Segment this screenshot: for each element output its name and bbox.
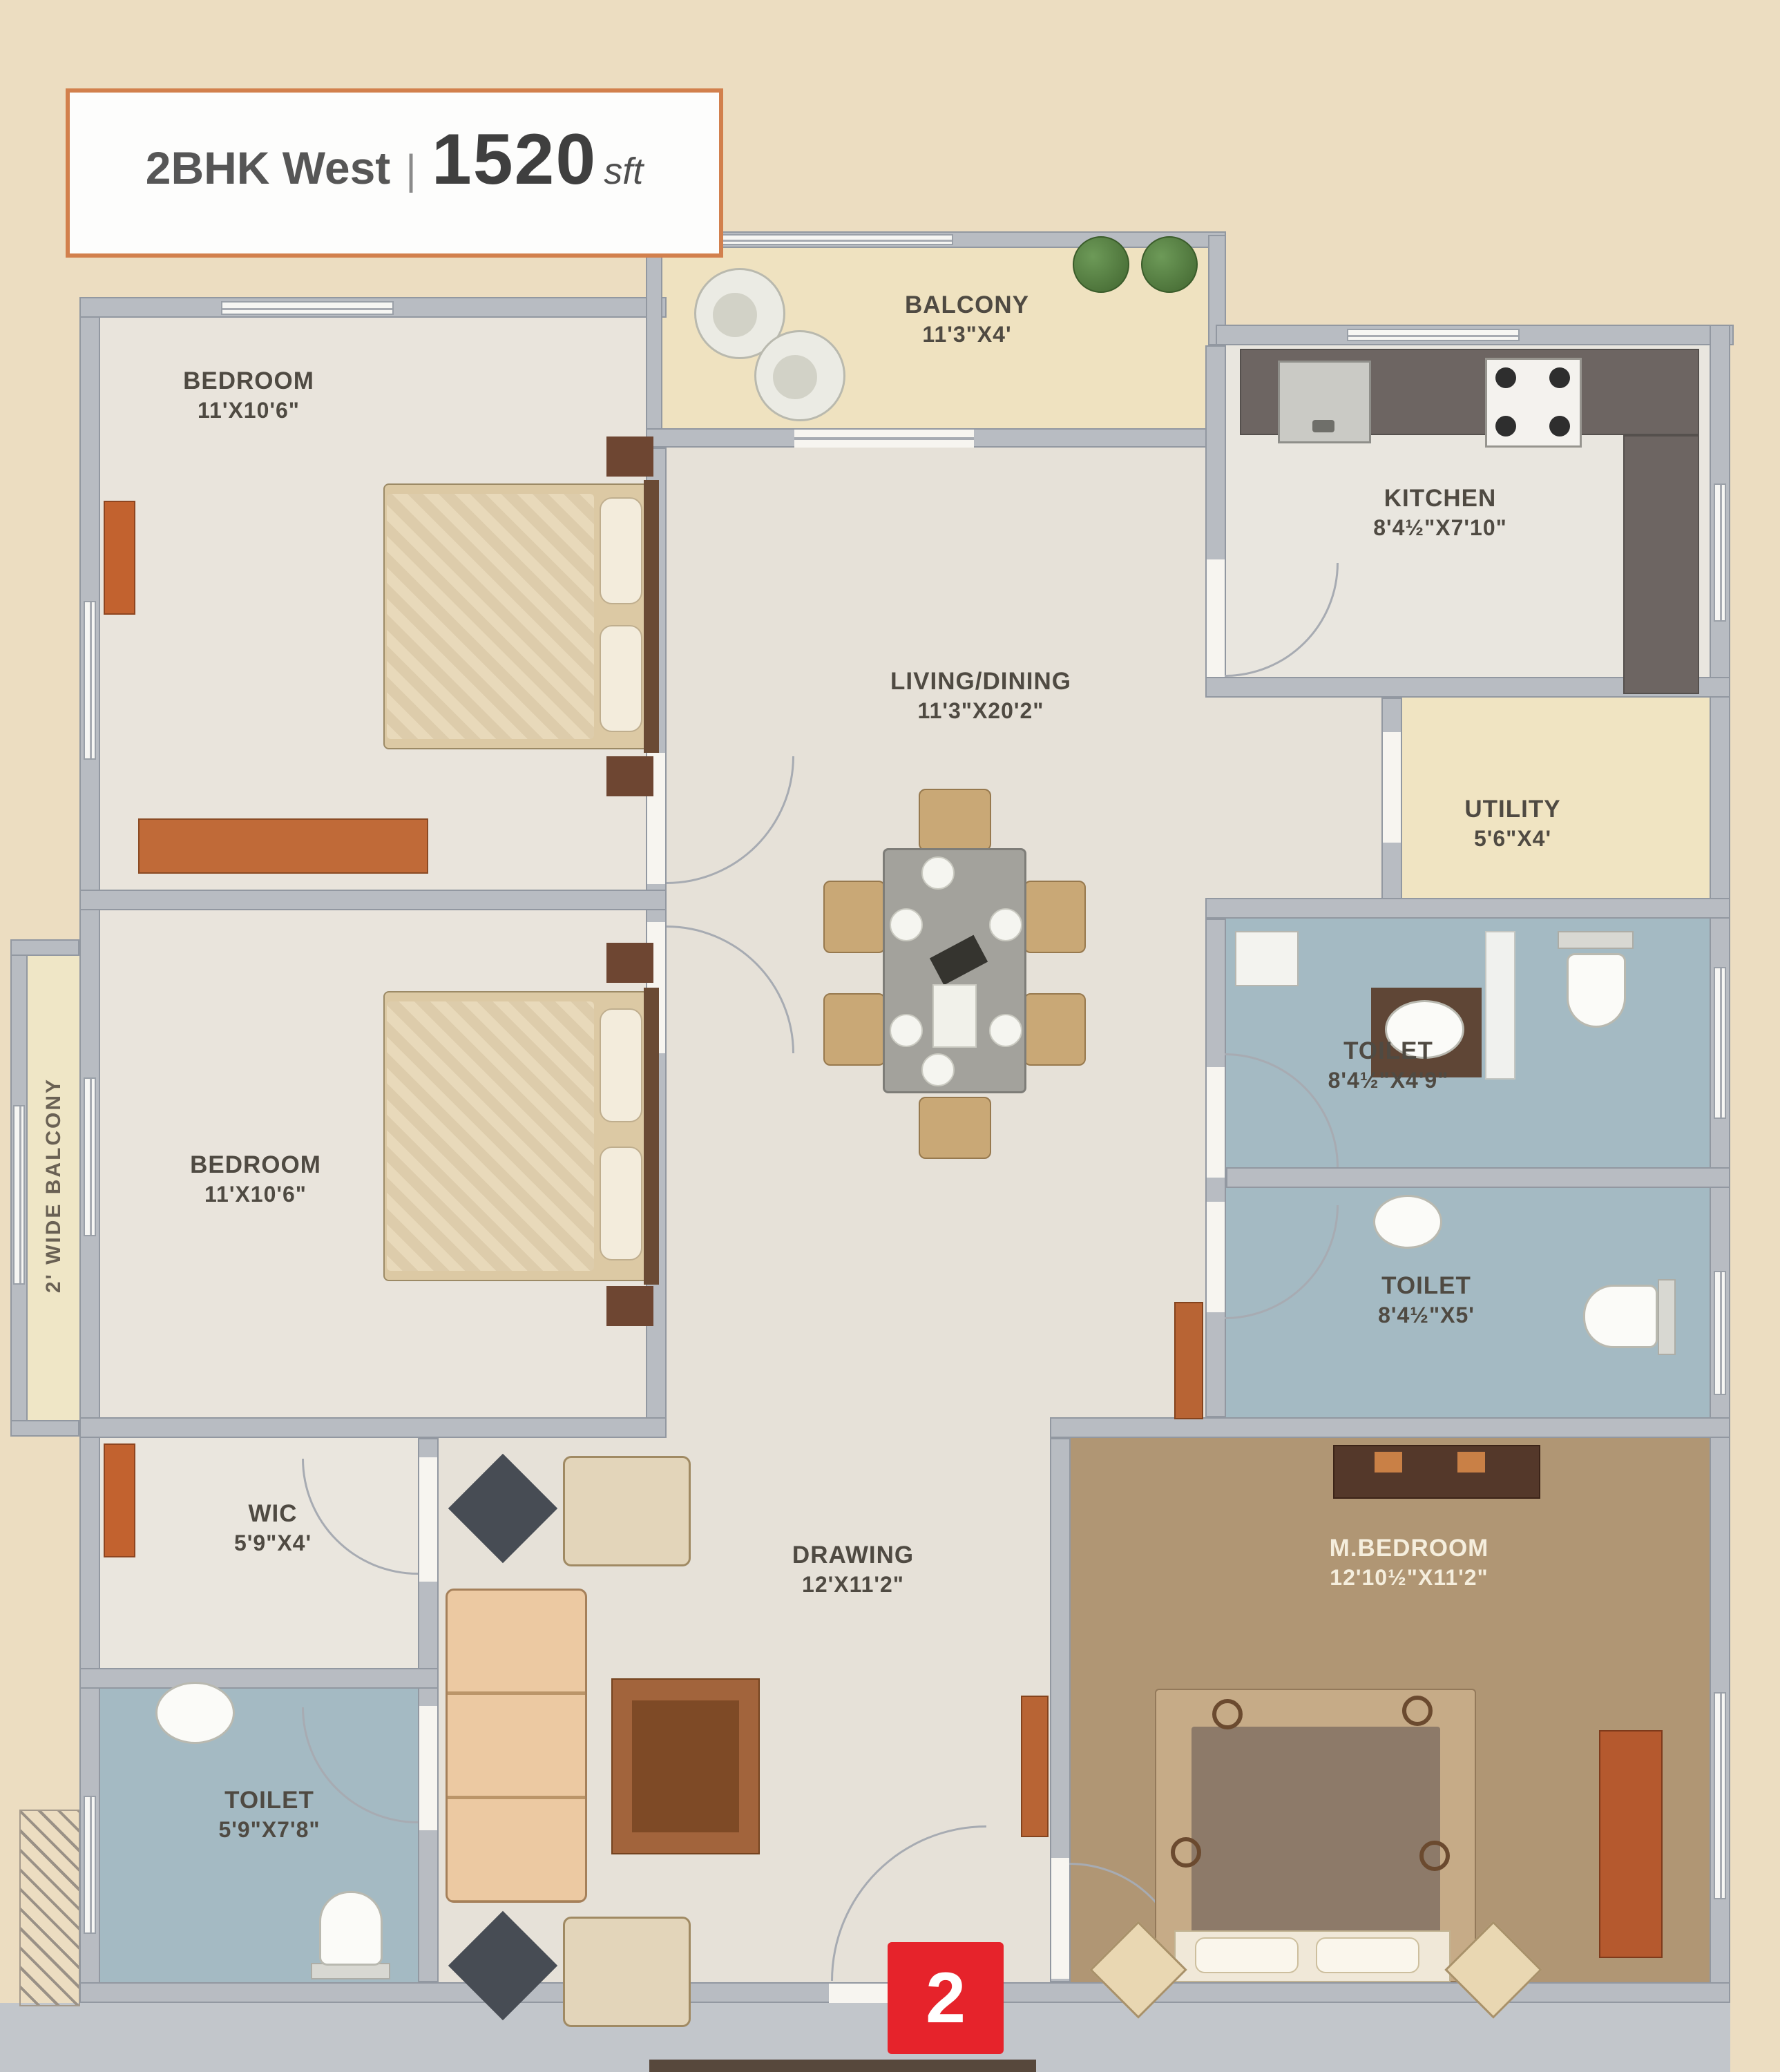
utility-label: UTILITY 5'6"X4' [1464,794,1560,852]
master-dresser [1333,1445,1540,1499]
drawing-tv-unit [1021,1696,1049,1837]
balcony-label: BALCONY 11'3"X4' [905,290,1029,348]
living-crockery-unit [1174,1302,1203,1419]
plan-title-unit: sft [604,150,643,193]
dining-plate-3 [890,1014,923,1047]
corridor-dark-strip [649,2060,1036,2072]
side-balcony-label: 2' WIDE BALCONY [42,1077,66,1293]
dining-chair-top [919,789,991,851]
passage-floor [1205,684,1388,912]
wic-dims: 5'9"X4' [234,1529,312,1557]
bedroom2-name: BEDROOM [190,1151,321,1178]
dining-chair-right-2 [1024,993,1086,1066]
master-bedroom-dims: 12'10½"X11'2" [1330,1564,1489,1591]
plan-title-divider: | [405,146,417,193]
bedroom1-name: BEDROOM [183,367,314,394]
dining-plate-4 [989,908,1022,941]
balcony-top-window [705,234,953,245]
bedroom1-pillow-2 [600,625,642,732]
master-bedroom-name: M.BEDROOM [1330,1535,1489,1562]
drawing-name: DRAWING [792,1542,914,1569]
bedroom1-label: BEDROOM 11'X10'6" [183,366,314,424]
master-blanket [1192,1727,1440,1941]
dining-chair-right-1 [1024,881,1086,953]
master-bed-ring-3 [1171,1837,1201,1868]
bedroom2-nightstand-top [606,943,653,983]
toilet2-wc [1583,1285,1658,1348]
bedroom2-label: BEDROOM 11'X10'6" [190,1150,321,1208]
wall-side-balcony-bottom [10,1420,79,1437]
wic-door-opening [419,1457,437,1582]
bedroom2-blanket [387,1001,594,1271]
wall-wic-toilet3 [79,1668,439,1689]
dining-plate-6 [921,1053,955,1086]
dining-chair-bottom [919,1097,991,1159]
dining-chair-left-1 [823,881,886,953]
bedroom1-wardrobe [104,501,135,615]
toilet2-sink [1373,1195,1442,1249]
bedroom2-pillow-2 [600,1147,642,1260]
wall-master-top [1050,1417,1730,1438]
bedroom2-dims: 11'X10'6" [190,1180,321,1208]
master-wardrobe [1599,1730,1663,1958]
living-dining-dims: 11'3"X20'2" [890,697,1071,725]
utility-door-opening [1383,732,1401,843]
plan-title-area: 1520 [432,119,597,201]
drawing-sofa [446,1589,587,1903]
toilet-top-dims: 8'4½"X4'9" [1328,1066,1449,1094]
bedroom1-headboard [644,480,659,753]
dining-plate-1 [921,856,955,890]
stove-burner-1 [1495,367,1516,388]
entry-unit-badge: 2 [888,1942,1004,2054]
bedroom1-credenza [138,818,428,874]
toilet3-wc [319,1891,383,1966]
toilet-top-name: TOILET [1343,1037,1433,1064]
dining-tray [932,984,977,1048]
bedroom2-headboard [644,988,659,1285]
toilet-bottom-dims: 5'9"X7'8" [218,1816,320,1843]
balcony-dims: 11'3"X4' [905,320,1029,348]
balcony-slider-opening [794,430,974,448]
toilet3-door-opening [419,1706,437,1830]
drawing-armchair-bottom [563,1917,691,2027]
balcony-seat-1-inner [713,293,757,337]
kitchen-name: KITCHEN [1384,485,1497,512]
wic-label: WIC 5'9"X4' [234,1499,312,1557]
toilet2-door-opening [1207,1202,1225,1312]
drawing-armchair-top [563,1456,691,1566]
balcony-plant-1 [1073,236,1129,293]
wall-bedroom2-wic [79,1417,667,1438]
bedroom2-pillow-1 [600,1008,642,1122]
toilet1-door-opening [1207,1067,1225,1178]
bedroom1-nightstand-bottom [606,756,653,796]
toilet-mid-label: TOILET 8'4½"X5' [1378,1271,1475,1329]
kitchen-label: KITCHEN 8'4½"X7'10" [1373,483,1507,541]
hatched-shaft [19,1810,80,2006]
kitchen-top-window [1347,329,1520,341]
bedroom1-blanket [387,494,594,739]
bedroom2-nightstand-bottom [606,1286,653,1326]
stove-burner-3 [1495,416,1516,437]
floor-plan-page: BEDROOM 11'X10'6" BALCONY 11'3"X4' KITCH… [0,0,1780,2072]
toilet3-left-window [84,1796,96,1934]
master-pillow-2 [1316,1937,1419,1973]
master-bed-ring-4 [1419,1841,1450,1871]
toilet1-basin-counter [1235,931,1299,986]
living-dining-name: LIVING/DINING [890,668,1071,695]
toilet1-wc [1567,953,1626,1028]
toilet1-wc-tank [1558,931,1634,949]
bedroom1-top-window [221,301,394,315]
plan-title-name: 2BHK West [146,142,391,194]
utility-name: UTILITY [1464,796,1560,823]
side-balcony-window [13,1105,25,1285]
kitchen-dims: 8'4½"X7'10" [1373,514,1507,541]
kitchen-door-opening [1207,559,1225,677]
kitchen-right-window [1714,483,1726,622]
stove-burner-2 [1549,367,1570,388]
master-dresser-item-1 [1375,1452,1402,1473]
toilet-bottom-label: TOILET 5'9"X7'8" [218,1785,320,1843]
bedroom1-pillow-1 [600,497,642,604]
bedroom1-left-window [84,601,96,760]
wall-toilet-divider [1226,1167,1730,1188]
utility-dims: 5'6"X4' [1464,825,1560,852]
master-bed-ring-1 [1212,1699,1243,1729]
master-dresser-item-2 [1457,1452,1485,1473]
dining-plate-5 [989,1014,1022,1047]
stove-burner-4 [1549,416,1570,437]
toilet-bottom-name: TOILET [224,1787,314,1814]
kitchen-faucet [1312,420,1334,432]
bedroom1-nightstand-top [606,437,653,477]
master-pillow-1 [1195,1937,1299,1973]
living-dining-label: LIVING/DINING 11'3"X20'2" [890,666,1071,725]
balcony-name: BALCONY [905,291,1029,318]
bedroom2-left-window [84,1077,96,1236]
master-bedroom-label: M.BEDROOM 12'10½"X11'2" [1330,1533,1489,1591]
toilet-top-label: TOILET 8'4½"X4'9" [1328,1036,1449,1094]
master-bed-ring-2 [1402,1696,1433,1726]
plan-title-box: 2BHK West | 1520 sft [66,88,723,258]
toilet2-wc-tank [1658,1279,1676,1355]
drawing-dims: 12'X11'2" [792,1571,914,1598]
dining-chair-left-2 [823,993,886,1066]
toilet1-right-window [1714,967,1726,1119]
balcony-seat-2-inner [773,355,817,399]
wall-bedroom-divider [79,890,667,910]
toilet-mid-name: TOILET [1381,1272,1471,1299]
toilet2-right-window [1714,1271,1726,1395]
kitchen-counter-right [1623,435,1699,694]
toilet3-sink [155,1682,235,1744]
dining-plate-2 [890,908,923,941]
balcony-plant-2 [1141,236,1198,293]
wall-side-balcony-top [10,939,79,956]
master-right-window [1714,1692,1726,1899]
bedroom1-dims: 11'X10'6" [183,396,314,424]
master-door-opening [1051,1858,1069,1979]
toilet1-partition [1485,931,1515,1080]
drawing-coffee-table-inner [632,1700,739,1832]
wic-name: WIC [248,1500,297,1527]
wall-utility-bottom [1205,898,1730,919]
wic-wardrobe [104,1443,135,1557]
wall-balcony-left [646,231,662,445]
drawing-label: DRAWING 12'X11'2" [792,1540,914,1598]
toilet-mid-dims: 8'4½"X5' [1378,1301,1475,1329]
